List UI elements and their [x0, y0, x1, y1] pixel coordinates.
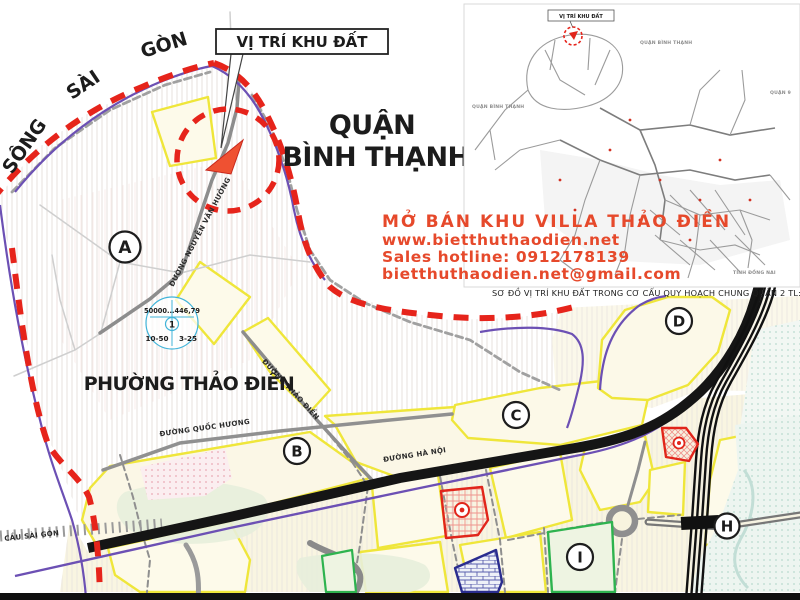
ward-name: PHƯỜNG THẢO ĐIỀN — [84, 369, 295, 395]
district-name-line1: QUẬN — [329, 109, 415, 141]
ad-headline: MỞ BÁN KHU VILLA THẢO ĐIỀN — [382, 208, 731, 232]
ad-email[interactable]: bietthuthaodien.net@gmail.com — [382, 265, 681, 283]
zone-d: D — [666, 308, 692, 334]
zone-i-label: I — [577, 549, 583, 567]
inset-label-quan9: QUẬN 9 — [770, 89, 791, 96]
zone-a: A — [110, 232, 141, 263]
zone-h-label: H — [721, 518, 734, 536]
inset-caption: SƠ ĐỒ VỊ TRÍ KHU ĐẤT TRONG CƠ CẤU QUY HO… — [492, 286, 800, 299]
zone-a-label: A — [118, 238, 132, 258]
stamp-top-row: 50000...446,79 — [144, 307, 200, 315]
zone-h: H — [715, 514, 740, 539]
ad-website[interactable]: www.bietthuthaodien.net — [382, 231, 620, 249]
site-callout-label: VỊ TRÍ KHU ĐẤT — [237, 30, 369, 51]
stamp-bottom-left: 10-50 — [146, 334, 169, 343]
zone-d-label: D — [673, 313, 685, 331]
site-callout: VỊ TRÍ KHU ĐẤT — [216, 29, 388, 54]
stamp-bottom-right: 3-25 — [179, 334, 197, 343]
inset-site-callout-label: VỊ TRÍ KHU ĐẤT — [559, 12, 603, 20]
zone-b: B — [284, 438, 310, 464]
district-name-line2: BÌNH THẠNH — [282, 141, 469, 173]
planning-map: VỊ TRÍ KHU ĐẤT 50000...446,79 1 10-50 3-… — [0, 0, 800, 600]
bottom-bar — [0, 593, 800, 600]
ad-hotline: Sales hotline: 0912178139 — [382, 248, 630, 266]
zone-b-label: B — [291, 443, 302, 461]
zone-c: C — [503, 402, 529, 428]
zone-c-label: C — [510, 407, 521, 425]
zone-i: I — [567, 544, 593, 570]
stamp-center: 1 — [169, 321, 175, 331]
